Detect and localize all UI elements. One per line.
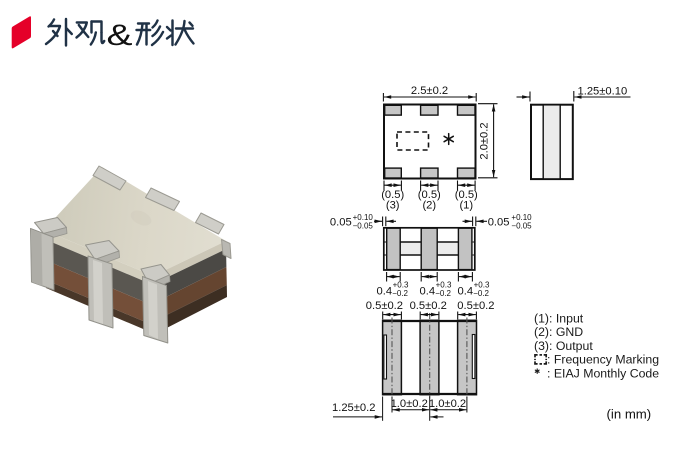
- svg-text:0.5±0.2: 0.5±0.2: [410, 300, 447, 312]
- svg-text:: EIAJ Monthly Code: : EIAJ Monthly Code: [547, 367, 659, 381]
- svg-text:(in mm): (in mm): [607, 407, 652, 422]
- svg-text:0.5±0.2: 0.5±0.2: [366, 300, 403, 312]
- svg-text:1.0±0.2: 1.0±0.2: [391, 398, 428, 410]
- svg-text:−0.05: −0.05: [353, 221, 374, 230]
- svg-text:1.25±0.2: 1.25±0.2: [332, 402, 375, 414]
- svg-text:+0.3: +0.3: [474, 280, 490, 289]
- svg-text:−0.05: −0.05: [511, 221, 532, 230]
- svg-text:&: &: [107, 19, 133, 52]
- svg-text:: Frequency Marking: : Frequency Marking: [547, 353, 659, 367]
- svg-text:0.05: 0.05: [330, 217, 352, 229]
- svg-text:0.4: 0.4: [377, 286, 393, 298]
- svg-text:(1): (1): [459, 199, 473, 211]
- svg-text:−0.2: −0.2: [473, 289, 489, 298]
- svg-text:0.4: 0.4: [458, 286, 474, 298]
- svg-text:(3): (3): [386, 199, 400, 211]
- svg-text:(1): Input: (1): Input: [534, 311, 584, 325]
- svg-text:0.5±0.2: 0.5±0.2: [457, 300, 494, 312]
- svg-text:0.4: 0.4: [420, 286, 436, 298]
- svg-text:(2): (2): [422, 199, 436, 211]
- svg-text:−0.2: −0.2: [435, 289, 451, 298]
- svg-text:0.05: 0.05: [488, 217, 510, 229]
- svg-text:(3): Output: (3): Output: [534, 339, 593, 353]
- svg-text:(2): GND: (2): GND: [534, 325, 583, 339]
- svg-text:+0.3: +0.3: [436, 280, 452, 289]
- svg-text:−0.2: −0.2: [392, 289, 408, 298]
- svg-text:2.0±0.2: 2.0±0.2: [479, 122, 491, 159]
- svg-text:2.5±0.2: 2.5±0.2: [411, 85, 448, 97]
- svg-text:+0.3: +0.3: [393, 280, 409, 289]
- svg-text:1.0±0.2: 1.0±0.2: [429, 398, 466, 410]
- svg-text:1.25±0.10: 1.25±0.10: [578, 86, 628, 98]
